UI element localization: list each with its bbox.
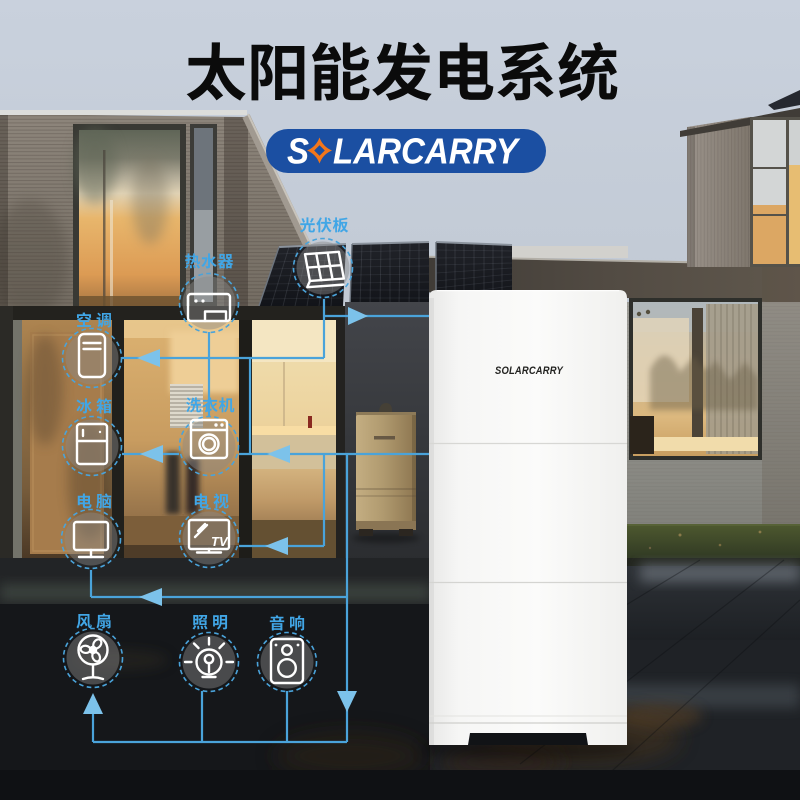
svg-text:S: S (287, 131, 309, 172)
svg-text:TV: TV (211, 534, 229, 549)
svg-text:LARCARRY: LARCARRY (333, 131, 521, 172)
svg-text:SOLARCARRY: SOLARCARRY (495, 365, 564, 377)
